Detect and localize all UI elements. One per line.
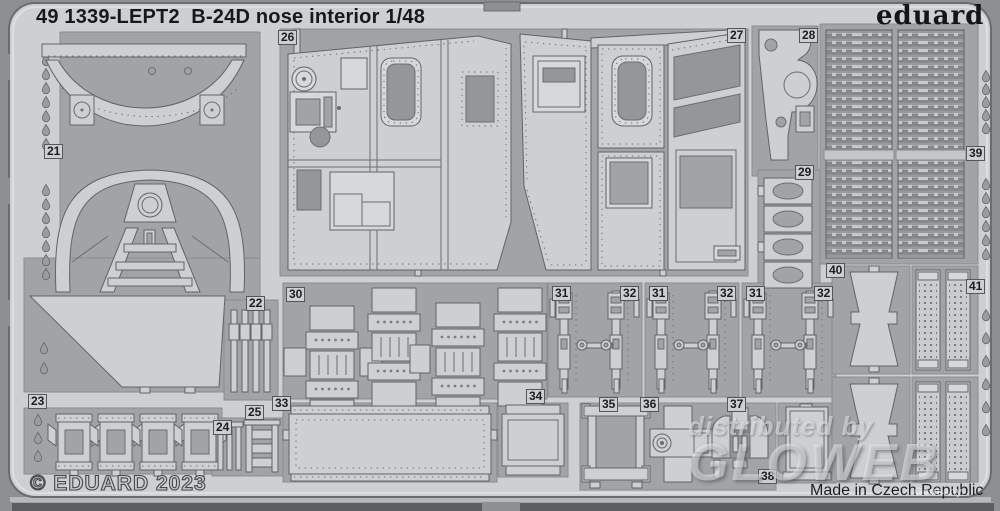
part-label-37: 37: [727, 397, 746, 412]
part-30-ammo-boxes: [284, 288, 546, 424]
part-label-27: 27: [727, 28, 746, 43]
part-label-29: 29: [795, 165, 814, 180]
part-label-32: 32: [717, 286, 736, 301]
part-label-31: 31: [552, 286, 571, 301]
part-label-21: 21: [44, 144, 63, 159]
part-label-25: 25: [245, 405, 264, 420]
part-label-35: 35: [599, 397, 618, 412]
part-label-24: 24: [213, 420, 232, 435]
part-label-31: 31: [746, 286, 765, 301]
part-label-36: 36: [640, 397, 659, 412]
part-label-39: 39: [966, 146, 985, 161]
part-33-floor-panel: [283, 406, 497, 481]
part-label-41: 41: [966, 279, 985, 294]
part-label-26: 26: [278, 30, 297, 45]
sheet-title: 49 1339-LEPT2 B-24D nose interior 1/48: [36, 5, 425, 29]
part-label-34: 34: [526, 389, 545, 404]
part-label-33: 33: [272, 396, 291, 411]
part-34-panel: [502, 405, 564, 475]
part-26-sidewall-left: [288, 36, 511, 270]
frame-notch: [484, 2, 520, 11]
part-label-23: 23: [28, 394, 47, 409]
part-label-32: 32: [620, 286, 639, 301]
copyright-text: © EDUARD 2023: [30, 472, 207, 496]
pe-sheet-photo: 49 1339-LEPT2 B-24D nose interior 1/48 e…: [0, 0, 1000, 511]
part-label-22: 22: [246, 296, 265, 311]
part-label-38: 38: [758, 469, 777, 484]
pe-fret-art: [0, 0, 1000, 511]
part-38-panel: [783, 404, 831, 480]
made-in-text: Made in Czech Republic: [810, 482, 983, 500]
background-bar-right: [520, 502, 994, 511]
part-label-31: 31: [649, 286, 668, 301]
background-bar-left: [12, 502, 482, 511]
part-label-28: 28: [799, 28, 818, 43]
part-label-30: 30: [286, 287, 305, 302]
part-label-32: 32: [814, 286, 833, 301]
eduard-logo: eduard: [876, 1, 984, 31]
part-label-40: 40: [826, 263, 845, 278]
